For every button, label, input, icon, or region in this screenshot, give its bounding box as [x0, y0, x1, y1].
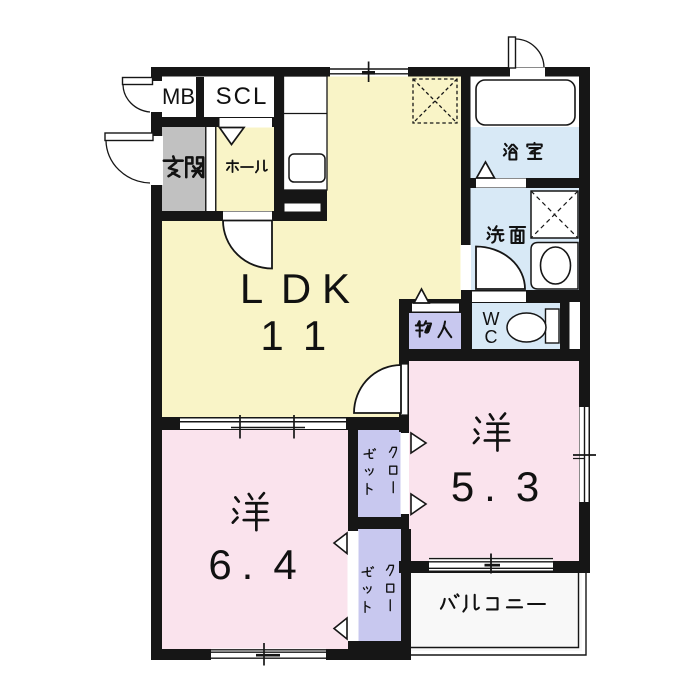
svg-text:C: C	[485, 327, 498, 347]
svg-text:5.3: 5.3	[451, 463, 539, 510]
svg-text:LDK: LDK	[240, 265, 350, 312]
svg-text:MB: MB	[162, 84, 195, 109]
svg-text:SCL: SCL	[216, 83, 269, 110]
svg-text:6.4: 6.4	[208, 541, 296, 588]
svg-text:W: W	[483, 309, 500, 329]
